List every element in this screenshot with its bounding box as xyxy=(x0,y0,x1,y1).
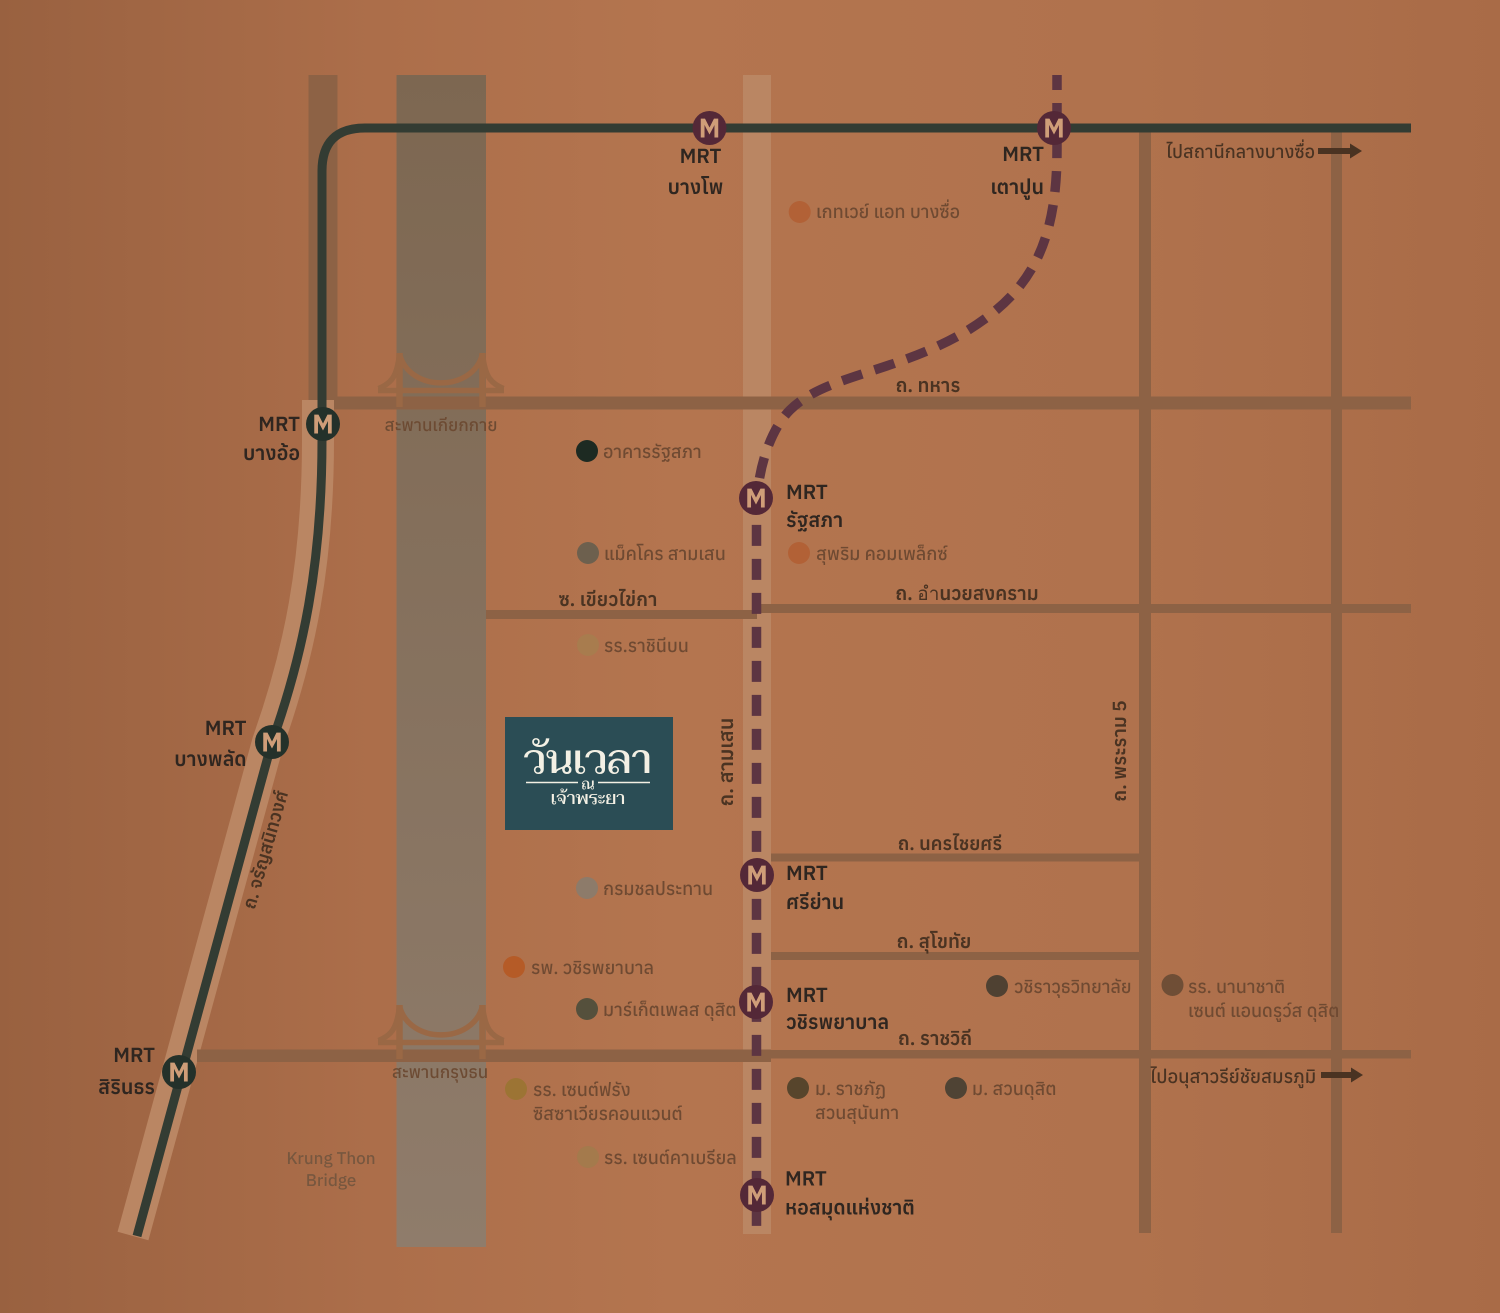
svg-text:MRT: MRT xyxy=(786,859,828,886)
svg-text:ศรีย่าน: ศรีย่าน xyxy=(786,888,844,915)
svg-text:แม็คโคร สามเสน: แม็คโคร สามเสน xyxy=(604,542,726,565)
svg-text:M: M xyxy=(261,725,283,760)
svg-text:เกทเวย์ แอท บางซื่อ: เกทเวย์ แอท บางซื่อ xyxy=(816,199,960,223)
svg-text:ถ. นครไชยศรี: ถ. นครไชยศรี xyxy=(898,832,1002,856)
svg-text:M: M xyxy=(168,1055,190,1090)
svg-text:ม. ราชภัฏ: ม. ราชภัฏ xyxy=(815,1077,886,1100)
svg-text:บางอ้อ: บางอ้อ xyxy=(243,439,300,466)
svg-text:วชิราวุธวิทยาลัย: วชิราวุธวิทยาลัย xyxy=(1014,975,1132,999)
svg-text:ซ. เขียวไข่กา: ซ. เขียวไข่กา xyxy=(559,588,658,612)
svg-text:M: M xyxy=(745,985,767,1020)
svg-text:สุพริม คอมเพล็กซ์: สุพริม คอมเพล็กซ์ xyxy=(816,542,948,566)
svg-text:วชิรพยาบาล: วชิรพยาบาล xyxy=(786,1008,889,1035)
svg-text:M: M xyxy=(1043,111,1065,146)
svg-text:รร. เซนต์ฟรัง: รร. เซนต์ฟรัง xyxy=(533,1078,631,1101)
svg-text:บางพลัด: บางพลัด xyxy=(174,745,246,772)
svg-text:ถ. พระราม 5: ถ. พระราม 5 xyxy=(1108,700,1132,801)
svg-text:MRT: MRT xyxy=(258,410,300,437)
svg-text:รร.ราชินีบน: รร.ราชินีบน xyxy=(604,634,689,657)
svg-text:หอสมุดแห่งชาติ: หอสมุดแห่งชาติ xyxy=(785,1194,915,1221)
svg-text:Krung Thon: Krung Thon xyxy=(286,1147,375,1169)
svg-text:MRT: MRT xyxy=(1002,140,1044,167)
svg-text:สะพานกรุงธน: สะพานกรุงธน xyxy=(392,1061,488,1083)
svg-text:เซนต์ แอนดรูว์ส ดุสิต: เซนต์ แอนดรูว์ส ดุสิต xyxy=(1188,999,1339,1023)
svg-text:M: M xyxy=(699,111,721,146)
svg-text:M: M xyxy=(312,407,334,442)
svg-text:มาร์เก็ตเพลส ดุสิต: มาร์เก็ตเพลส ดุสิต xyxy=(603,998,737,1022)
svg-text:ซิสซาเวียรคอนแวนต์: ซิสซาเวียรคอนแวนต์ xyxy=(533,1102,683,1125)
svg-text:เตาปูน: เตาปูน xyxy=(990,173,1044,200)
svg-text:MRT: MRT xyxy=(785,1165,827,1192)
svg-text:ถ. สุโขทัย: ถ. สุโขทัย xyxy=(897,930,972,954)
svg-text:รร. เซนต์คาเบรียล: รร. เซนต์คาเบรียล xyxy=(604,1146,737,1169)
svg-text:ถ. สามเสน: ถ. สามเสน xyxy=(712,718,739,807)
svg-text:ไปอนุสาวรีย์ชัยสมรภูมิ: ไปอนุสาวรีย์ชัยสมรภูมิ xyxy=(1150,1065,1316,1089)
svg-text:MRT: MRT xyxy=(680,142,722,169)
svg-text:M: M xyxy=(746,1178,768,1213)
svg-text:MRT: MRT xyxy=(113,1041,155,1068)
svg-text:MRT: MRT xyxy=(786,478,828,505)
svg-text:เจ้าพระยา: เจ้าพระยา xyxy=(551,783,625,814)
svg-text:บางโพ: บางโพ xyxy=(668,173,724,200)
svg-text:สะพานเกียกกาย: สะพานเกียกกาย xyxy=(385,414,498,436)
svg-text:ถ. ทหาร: ถ. ทหาร xyxy=(896,374,961,398)
svg-text:ไปสถานีกลางบางซื่อ: ไปสถานีกลางบางซื่อ xyxy=(1166,139,1315,163)
svg-text:MRT: MRT xyxy=(786,981,828,1008)
svg-text:สิรินธร: สิรินธร xyxy=(98,1073,155,1100)
svg-text:M: M xyxy=(746,858,768,893)
svg-text:MRT: MRT xyxy=(205,714,247,741)
svg-text:ถ. ราชวิถี: ถ. ราชวิถี xyxy=(898,1027,972,1051)
svg-text:กรมชลประทาน: กรมชลประทาน xyxy=(603,877,713,900)
svg-text:M: M xyxy=(745,481,767,516)
svg-text:รร. นานาชาติ: รร. นานาชาติ xyxy=(1188,975,1285,998)
svg-text:รพ. วชิรพยาบาล: รพ. วชิรพยาบาล xyxy=(531,956,654,979)
svg-text:ม. สวนดุสิต: ม. สวนดุสิต xyxy=(972,1077,1057,1101)
svg-text:ถ. อำนวยสงคราม: ถ. อำนวยสงคราม xyxy=(895,582,1038,606)
svg-text:อาคารรัฐสภา: อาคารรัฐสภา xyxy=(603,440,702,463)
svg-text:Bridge: Bridge xyxy=(306,1169,357,1191)
svg-text:สวนสุนันทา: สวนสุนันทา xyxy=(815,1101,899,1125)
svg-text:รัฐสภา: รัฐสภา xyxy=(786,506,843,533)
